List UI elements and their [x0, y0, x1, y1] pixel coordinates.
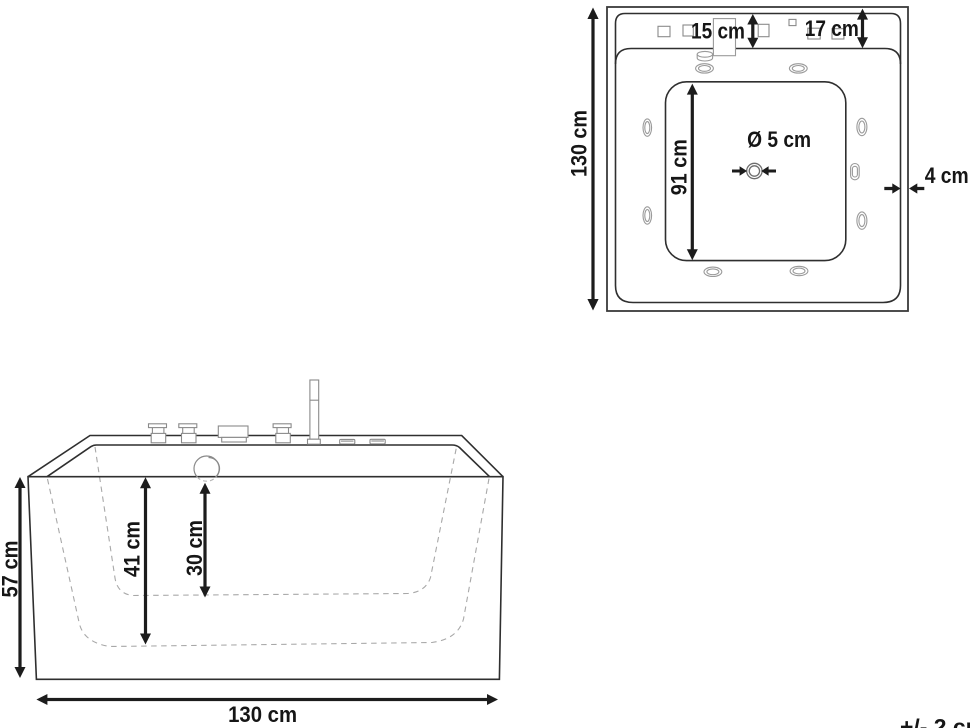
- svg-text:30 cm: 30 cm: [182, 520, 207, 576]
- svg-text:130 cm: 130 cm: [566, 110, 591, 177]
- svg-text:4 cm: 4 cm: [925, 163, 969, 188]
- svg-text:15 cm: 15 cm: [691, 18, 745, 43]
- svg-text:41 cm: 41 cm: [119, 521, 144, 577]
- svg-text:57 cm: 57 cm: [0, 541, 22, 598]
- svg-text:17 cm: 17 cm: [805, 16, 859, 41]
- svg-text:130 cm: 130 cm: [228, 702, 297, 727]
- svg-text:+/- 2 cm: +/- 2 cm: [900, 715, 970, 728]
- svg-text:91 cm: 91 cm: [667, 139, 692, 195]
- svg-text:Ø 5 cm: Ø 5 cm: [747, 127, 811, 152]
